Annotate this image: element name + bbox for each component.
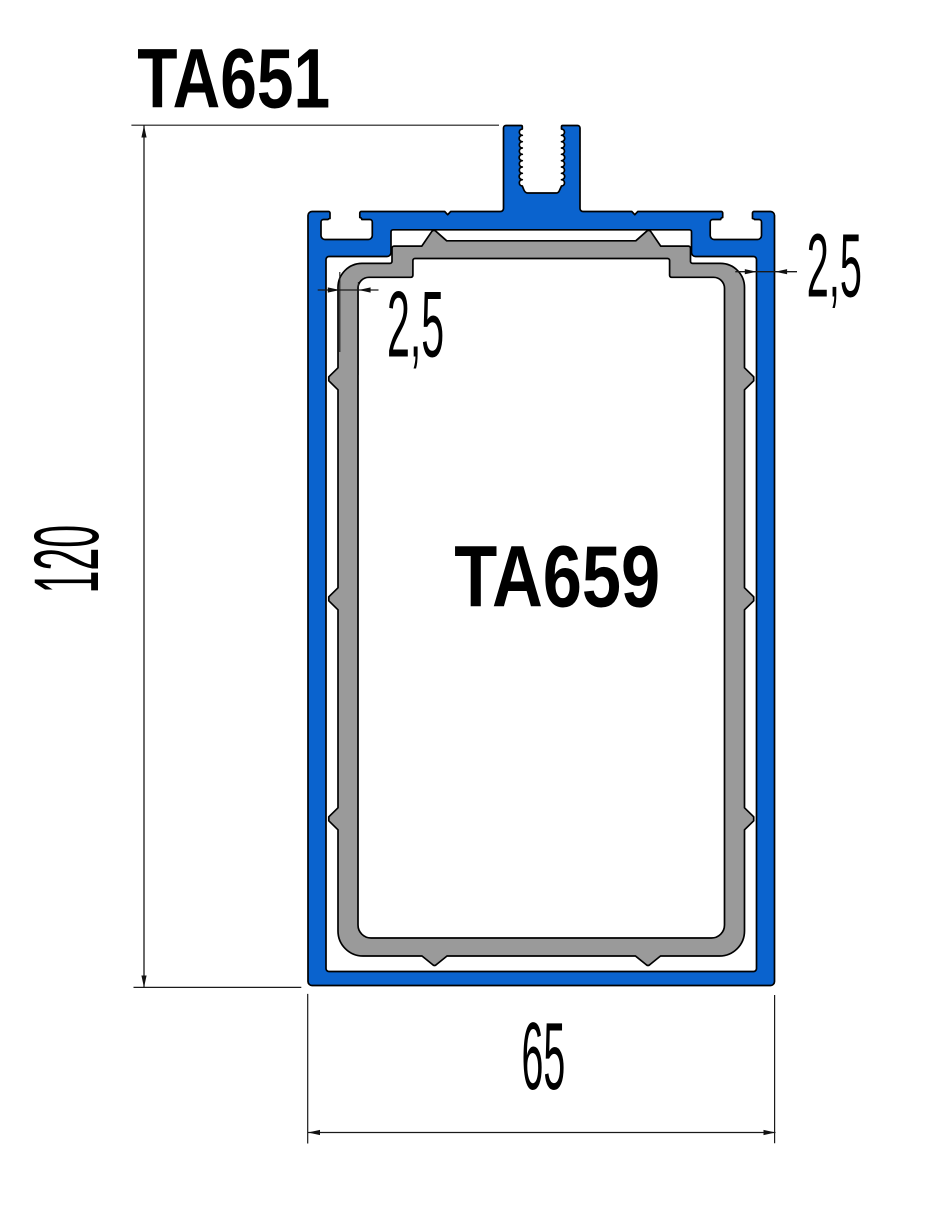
svg-text:TA651: TA651 xyxy=(137,33,330,126)
svg-text:2,5: 2,5 xyxy=(387,274,444,378)
svg-text:2,5: 2,5 xyxy=(807,215,862,316)
svg-text:65: 65 xyxy=(522,1002,566,1109)
svg-text:120: 120 xyxy=(17,525,119,594)
svg-text:TA659: TA659 xyxy=(454,528,660,626)
